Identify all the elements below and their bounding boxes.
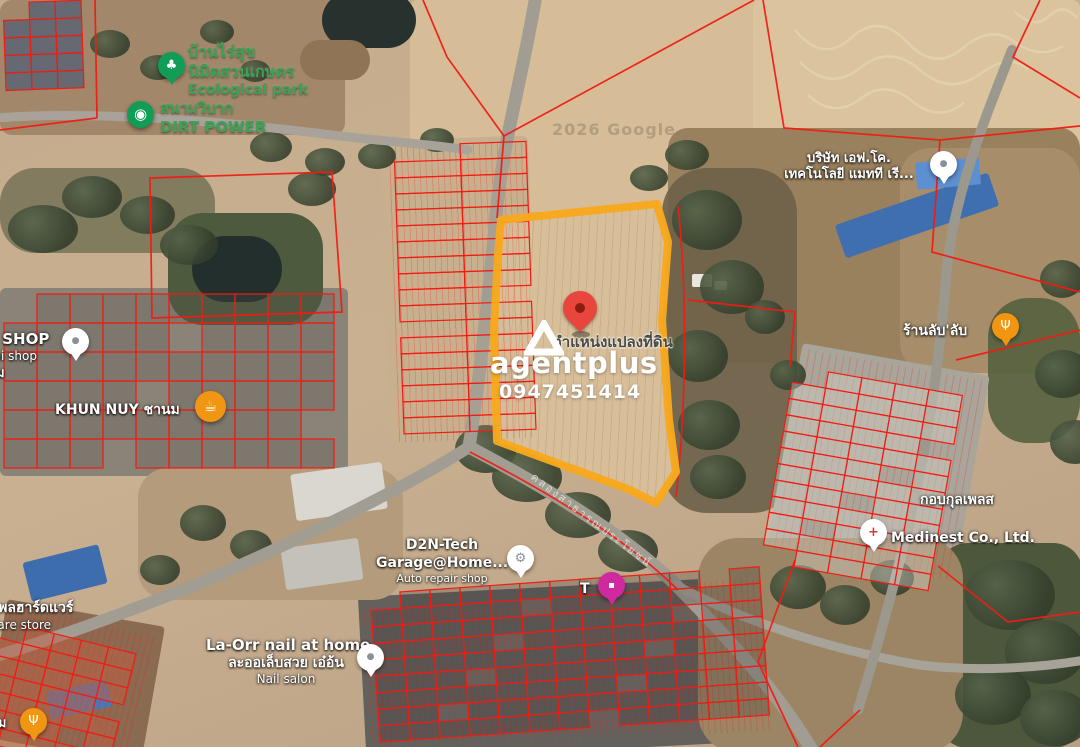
label-hardware-store[interactable]: ธนพลฮาร์ดแวร์ dware store [0,600,73,633]
label-ran-lub[interactable]: ร้านลับ'ลับ [903,323,967,341]
plus-icon: + [868,526,879,539]
label-d2n-tech[interactable]: D2N-Tech Garage@Home... Auto repair shop [376,537,508,586]
square-icon: ▪ [608,581,615,591]
poi-name: ละออเล็บสวย เอ๋อ้น [206,655,366,673]
label-khun-nuy[interactable]: KHUN NUY ชานม [55,402,180,420]
p-shop-pin[interactable]: ● [62,328,89,355]
label-dirt-power[interactable]: สนามวิบาก DIRT POWER [160,99,266,137]
khun-nuy-pin[interactable]: ☕ [195,391,226,422]
poi-subtitle: dware store [0,618,73,633]
poi-name: บริษัท เอฟ.โค. [768,151,930,167]
t-store-pin[interactable]: ▪ [598,572,625,599]
label-p-shop[interactable]: P SHOP pai shop [0,330,49,364]
label-kobkul-place[interactable]: กอบกุลเพลส [920,492,994,510]
dirt-power-pin[interactable]: ◉ [127,101,154,128]
poi-name: P SHOP [0,330,49,349]
poi-subtitle: Auto repair shop [376,572,508,586]
poi-subtitle: Nail salon [206,672,366,687]
tree-icon: ♣ [166,59,178,72]
poi-name: ธนพลฮาร์ดแวร์ [0,600,73,618]
medinest-pin[interactable]: + [860,519,887,546]
label-p-shop-partial: ม [0,366,5,382]
fork-knife-icon: Ψ [28,715,38,728]
cup-icon: ☕ [204,399,217,414]
label-fco-company[interactable]: บริษัท เอฟ.โค. เทคโนโลยี แมทที เรี... [768,151,930,184]
dot-icon: ● [940,160,948,169]
google-copyright: 2026 Google [552,120,676,139]
poi-name: เทคโนโลยี แมทที เรี... [768,167,930,183]
label-im-restaurant[interactable]: อิ่ม [0,716,6,732]
dot-icon: ● [72,337,80,346]
label-medinest[interactable]: Medinest Co., Ltd. [891,530,1035,548]
la-orr-pin[interactable]: ● [357,644,384,671]
poi-name: นิมิตสวนเกษตร [188,62,308,82]
track-icon: ◉ [134,107,147,122]
poi-name: สนามวิบาก [160,99,266,118]
poi-name: บ้านไร่สุข [188,42,308,62]
label-la-orr[interactable]: La-Orr nail at home ละออเล็บสวย เอ๋อ้น N… [206,636,366,687]
plow-scribbles [795,9,1077,112]
dot-icon: ● [367,653,375,662]
fork-knife-icon: Ψ [1000,320,1010,333]
label-t-store[interactable]: T [580,581,590,599]
poi-name: D2N-Tech [376,537,508,555]
ran-lub-pin[interactable]: Ψ [992,313,1019,340]
watermark-phone: 0947451414 [499,381,641,403]
watermark-brand: agentplus [490,346,658,380]
poi-name: DIRT POWER [160,118,266,137]
poi-subtitle: Ecological park [188,82,308,100]
im-restaurant-pin[interactable]: Ψ [20,708,47,735]
ecological-park-pin[interactable]: ♣ [158,52,185,79]
satellite-map[interactable]: ♣ บ้านไร่สุข นิมิตสวนเกษตร Ecological pa… [0,0,1080,747]
poi-subtitle: pai shop [0,349,49,364]
label-ecological-park[interactable]: บ้านไร่สุข นิมิตสวนเกษตร Ecological park [188,42,308,100]
poi-name: Garage@Home... [376,555,508,573]
gear-icon: ⚙ [515,552,527,565]
poi-name: La-Orr nail at home [206,636,366,655]
d2n-tech-pin[interactable]: ⚙ [507,545,534,572]
fco-company-pin[interactable]: ● [930,151,957,178]
